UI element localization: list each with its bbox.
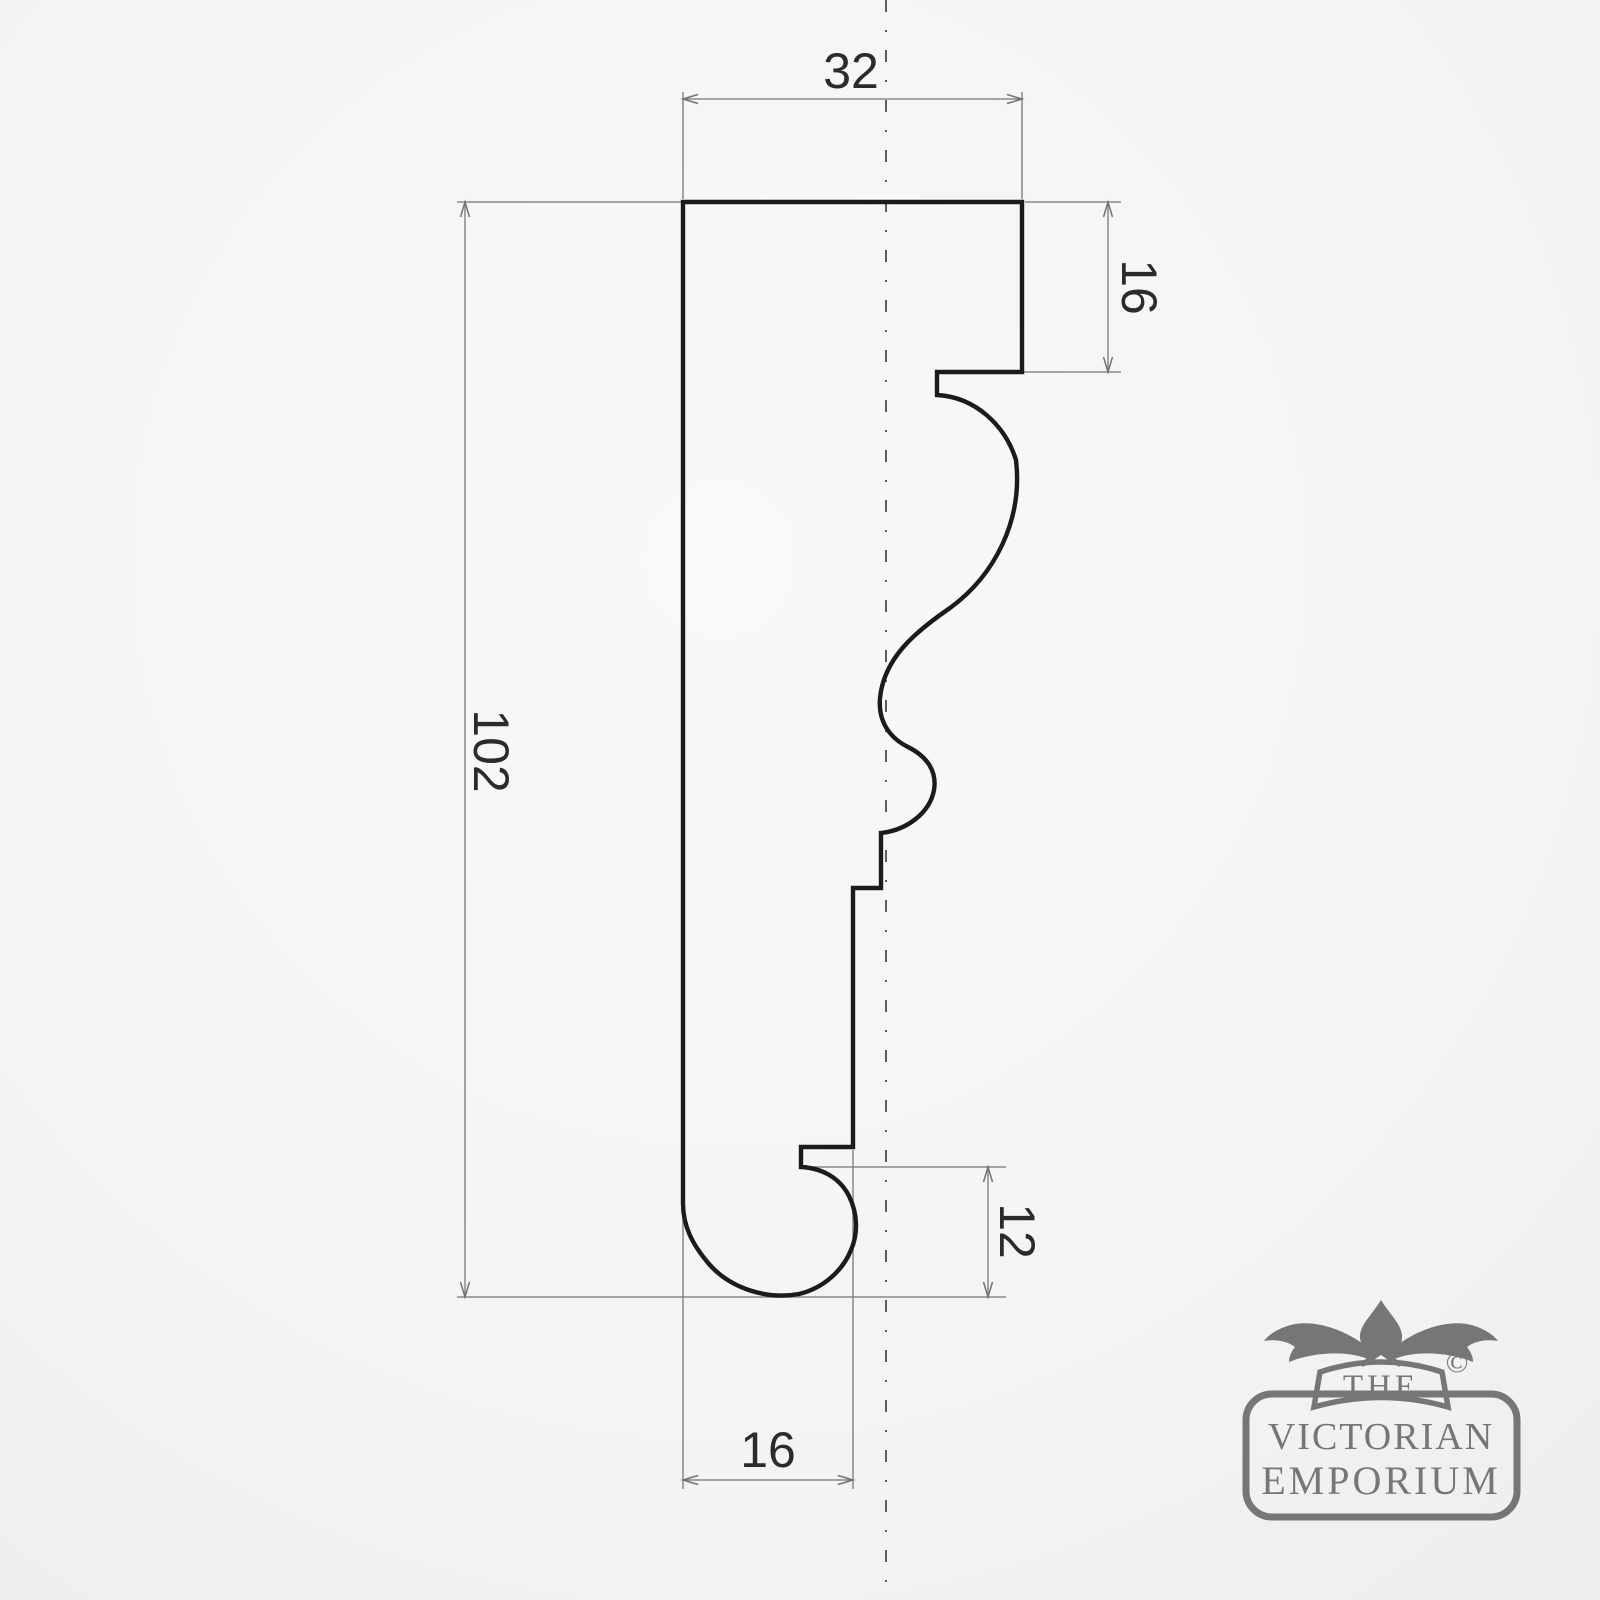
dimension-bottom-right-depth: 12 (803, 1167, 1045, 1297)
dimension-bottom-width: 16 (683, 1150, 853, 1489)
dimension-label-right-depth: 16 (1111, 259, 1167, 315)
dimension-overall-height: 102 (457, 202, 681, 1297)
logo-line1-text: VICTORIAN (1268, 1416, 1494, 1458)
logo-line2-text: EMPORIUM (1261, 1458, 1501, 1503)
moulding-profile-drawing: 32 16 102 12 (0, 0, 1600, 1600)
logo-the-text: THE (1343, 1369, 1419, 1405)
dimension-right-depth: 16 (1024, 202, 1167, 372)
copyright-icon: © (1446, 1346, 1469, 1379)
dimension-label-overall-height: 102 (463, 709, 519, 792)
technical-drawing-page: 32 16 102 12 (0, 0, 1600, 1600)
dimension-label-bottom-right-depth: 12 (989, 1203, 1045, 1259)
dimension-label-top-width: 32 (823, 43, 879, 99)
profile-outline (683, 202, 1022, 1296)
victorian-emporium-logo: THE © VICTORIAN EMPORIUM (1246, 1300, 1517, 1517)
dimension-top-width: 32 (683, 43, 1022, 199)
dimension-label-bottom-width: 16 (740, 1422, 796, 1478)
